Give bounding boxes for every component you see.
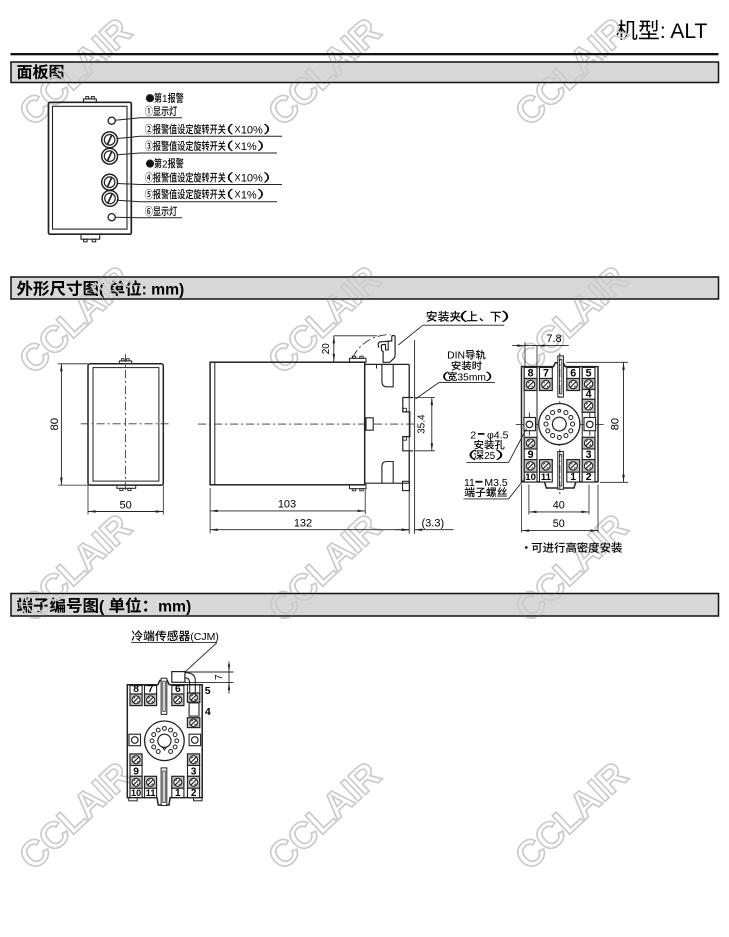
svg-text:(CJM): (CJM)	[190, 631, 219, 643]
svg-text:132: 132	[294, 517, 312, 529]
svg-text:(: (	[99, 599, 105, 616]
svg-text:50: 50	[553, 518, 565, 530]
svg-text:11: 11	[464, 477, 475, 489]
svg-text:20: 20	[321, 343, 332, 355]
svg-text:80: 80	[49, 418, 61, 431]
svg-text:: mm): : mm)	[142, 282, 185, 299]
svg-text:2: 2	[470, 429, 476, 441]
svg-text:1%: 1%	[241, 189, 257, 201]
svg-text:10: 10	[131, 788, 141, 798]
svg-text:103: 103	[278, 499, 296, 511]
svg-text:1: 1	[175, 788, 181, 799]
svg-text:10: 10	[525, 472, 536, 483]
svg-text:2: 2	[586, 472, 592, 483]
svg-text:5: 5	[205, 685, 211, 697]
svg-text:10%: 10%	[241, 173, 263, 185]
svg-text:11: 11	[541, 472, 552, 483]
svg-text:10%: 10%	[241, 124, 263, 136]
svg-text:35.4: 35.4	[417, 414, 428, 434]
svg-text:1: 1	[162, 94, 168, 105]
svg-text:DIN: DIN	[447, 351, 465, 362]
svg-text:7.8: 7.8	[546, 333, 561, 345]
svg-text:80: 80	[609, 418, 621, 430]
svg-text:11: 11	[146, 788, 156, 798]
svg-text:40: 40	[553, 499, 565, 511]
svg-text:1%: 1%	[241, 141, 257, 153]
svg-text:: ALT: : ALT	[660, 20, 708, 43]
svg-text:25: 25	[484, 451, 496, 462]
svg-text:2: 2	[162, 159, 168, 170]
svg-text:50: 50	[119, 499, 131, 511]
svg-text:2: 2	[191, 788, 197, 799]
svg-text:(3.3): (3.3)	[422, 518, 445, 530]
svg-text:35mm: 35mm	[457, 372, 486, 383]
svg-text:4: 4	[205, 706, 211, 718]
svg-text:φ4.5: φ4.5	[487, 429, 509, 441]
svg-text:mm): mm)	[158, 599, 191, 616]
svg-text:7: 7	[214, 674, 225, 680]
svg-text:1: 1	[570, 472, 576, 483]
